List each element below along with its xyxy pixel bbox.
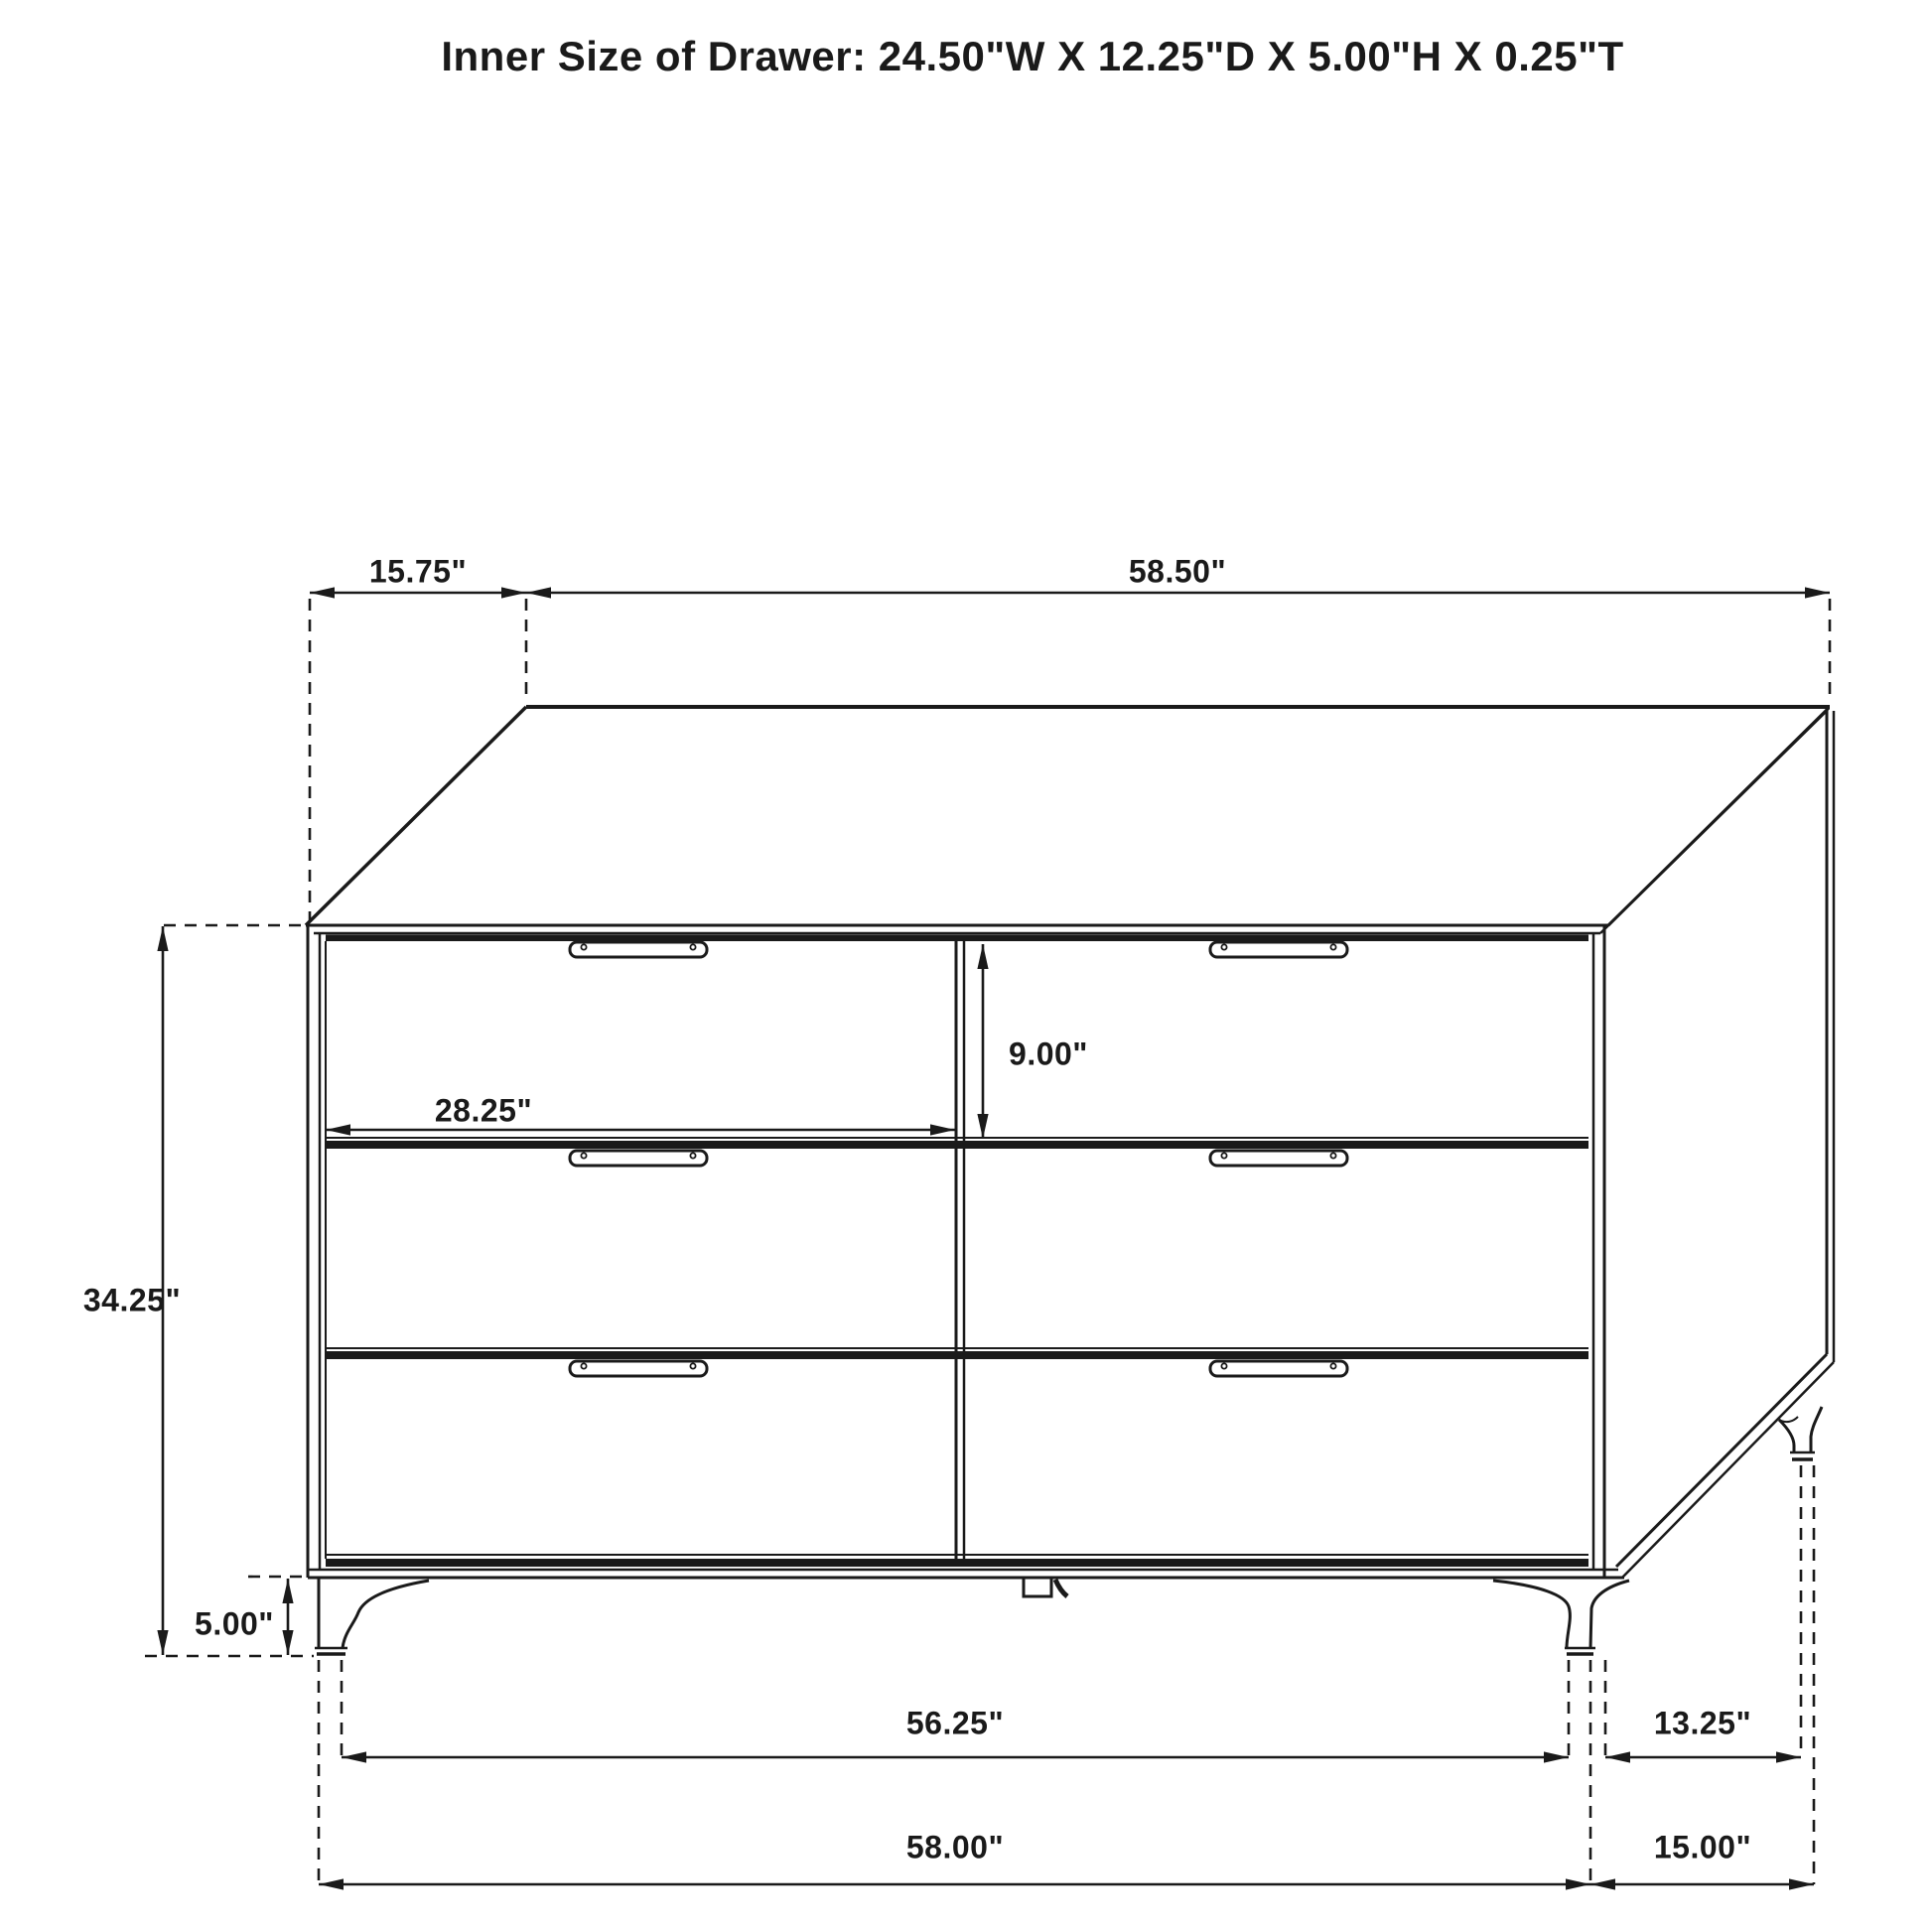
dim-label-feet-span-side: 13.25" — [1654, 1706, 1751, 1742]
drawer-handle — [570, 1361, 707, 1376]
dim-label-drawer-front-height: 9.00" — [1009, 1036, 1088, 1073]
dim-label-top-width: 58.50" — [1129, 554, 1226, 591]
dresser-front-face — [308, 925, 1624, 1578]
dresser-side-panel — [1616, 707, 1834, 1578]
dimension-lines — [163, 593, 1830, 1884]
dresser-legs — [315, 1407, 1822, 1654]
drawer-handle — [570, 1151, 707, 1166]
rear-right-leg — [1779, 1407, 1822, 1459]
dim-label-feet-span-front: 56.25" — [906, 1706, 1004, 1742]
front-center-leg — [1024, 1579, 1067, 1596]
drawer-handle — [1210, 1151, 1347, 1166]
dim-label-drawer-opening-width: 28.25" — [435, 1093, 532, 1130]
dimension-drawing-page: Inner Size of Drawer: 24.50"W X 12.25"D … — [0, 0, 1932, 1932]
dim-label-leg-height: 5.00" — [195, 1606, 274, 1643]
dim-label-base-depth: 15.00" — [1654, 1830, 1751, 1866]
dim-label-top-depth: 15.75" — [369, 554, 467, 591]
page-title: Inner Size of Drawer: 24.50"W X 12.25"D … — [441, 33, 1623, 80]
drawer-handles — [570, 942, 1347, 1376]
front-left-leg — [315, 1578, 429, 1654]
drawer-handle — [1210, 942, 1347, 957]
drawer-handle — [570, 942, 707, 957]
dim-label-overall-height: 34.25" — [83, 1283, 181, 1319]
extension-lines — [145, 599, 1830, 1884]
dim-label-base-width: 58.00" — [906, 1830, 1004, 1866]
front-right-leg — [1493, 1581, 1629, 1654]
dresser-top-face — [306, 707, 1830, 933]
drawer-handle — [1210, 1361, 1347, 1376]
dresser-diagram — [0, 0, 1932, 1932]
